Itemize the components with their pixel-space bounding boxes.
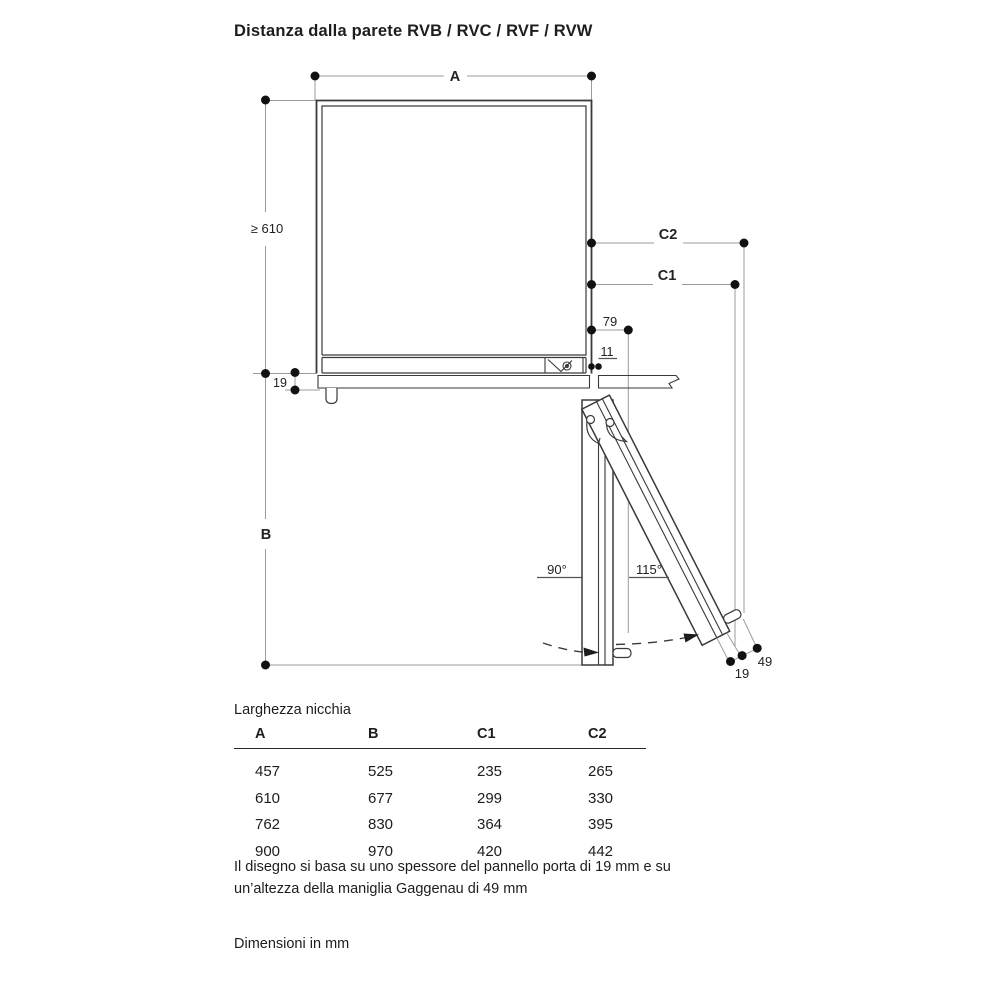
label-90deg: 90° [547, 562, 567, 577]
dot [738, 651, 747, 660]
note-line-1: Il disegno si basa su uno spessore del p… [234, 856, 712, 878]
niche-inner-wall [322, 106, 586, 355]
hinge-pivot-1 [587, 416, 595, 424]
dot [588, 363, 595, 370]
swing-arrow-right [684, 634, 700, 643]
table-rule [234, 748, 646, 749]
swing-arc-right [616, 638, 686, 645]
label-11: 11 [601, 345, 614, 359]
hinge-pivot-2 [606, 419, 614, 427]
cell: 265 [588, 759, 667, 786]
cell: 299 [477, 786, 588, 813]
cell: 762 [255, 812, 368, 839]
label-niche-width: A [450, 69, 461, 85]
label-c1: C1 [658, 268, 677, 284]
dot [753, 644, 762, 653]
dot [587, 280, 596, 289]
furniture-front-right [599, 376, 680, 389]
niche-outer-wall [317, 101, 592, 374]
dot [595, 363, 602, 370]
drawing-note: Il disegno si basa su uno spessore del p… [234, 856, 712, 900]
dot [311, 72, 320, 81]
label-115deg: 115° [636, 562, 662, 577]
niche-box [317, 101, 680, 404]
dim-line-depth [266, 100, 317, 374]
door-90-handle [613, 649, 631, 658]
cell: 235 [477, 759, 588, 786]
col-header-C2: C2 [588, 726, 667, 742]
label-19-left: 19 [273, 376, 287, 390]
col-header-B: B [368, 726, 477, 742]
cell: 525 [368, 759, 477, 786]
col-header-A: A [255, 726, 368, 742]
label-49-handle: 49 [758, 654, 772, 669]
label-19-door: 19 [735, 666, 749, 681]
cell: 395 [588, 812, 667, 839]
dot [587, 326, 596, 335]
cell: 330 [588, 786, 667, 813]
col-header-C1: C1 [477, 726, 588, 742]
units-note: Dimensioni in mm [234, 936, 349, 952]
dot [624, 326, 633, 335]
label-swing-depth: B [261, 527, 271, 543]
spec-sheet-page: Distanza dalla parete RVB / RVC / RVF / … [0, 0, 1000, 1000]
note-line-2: un’altezza della maniglia Gaggenau di 49… [234, 878, 712, 900]
dot [726, 657, 735, 666]
furniture-front-left [318, 376, 590, 389]
table-row: 762 830 364 395 [234, 812, 646, 839]
dim-line-B [266, 374, 583, 666]
label-c2: C2 [659, 227, 678, 243]
cell: 610 [255, 786, 368, 813]
dot [261, 96, 270, 105]
dot [731, 280, 740, 289]
dot [587, 72, 596, 81]
cell: 677 [368, 786, 477, 813]
plinth [322, 358, 586, 374]
dot [587, 239, 596, 248]
cell: 364 [477, 812, 588, 839]
base-hinge-detail [545, 358, 583, 374]
table-header-row: A B C1 C2 [234, 726, 646, 748]
niche-width-table: A B C1 C2 457 525 235 265 610 677 299 33… [234, 726, 646, 865]
dot [740, 239, 749, 248]
table-row: 457 525 235 265 [234, 759, 646, 786]
dot [261, 661, 270, 670]
cell: 457 [255, 759, 368, 786]
table-row: 610 677 299 330 [234, 786, 646, 813]
dot [261, 369, 270, 378]
cell: 830 [368, 812, 477, 839]
door-115-handle [722, 608, 742, 624]
dot [291, 368, 300, 377]
label-niche-depth: ≥ 610 [251, 221, 283, 236]
table-caption: Larghezza nicchia [234, 702, 351, 718]
label-79: 79 [603, 314, 617, 329]
appliance-foot [326, 388, 337, 404]
dot [291, 386, 300, 395]
